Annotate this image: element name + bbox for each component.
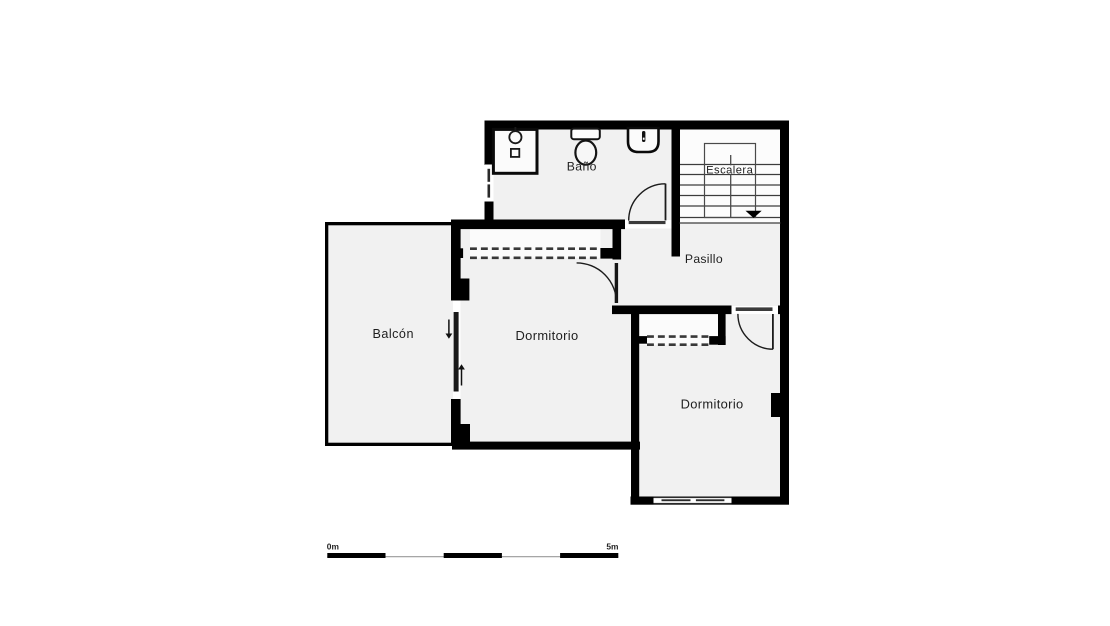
svg-text:Baño: Baño [567, 160, 597, 174]
svg-text:Dormitorio: Dormitorio [516, 328, 579, 343]
svg-text:5m: 5m [606, 542, 618, 552]
svg-text:0m: 0m [327, 542, 339, 552]
svg-text:Escalera: Escalera [706, 164, 753, 176]
svg-text:Pasillo: Pasillo [685, 252, 723, 266]
svg-text:Dormitorio: Dormitorio [681, 396, 744, 411]
svg-text:Balcón: Balcón [372, 327, 414, 341]
